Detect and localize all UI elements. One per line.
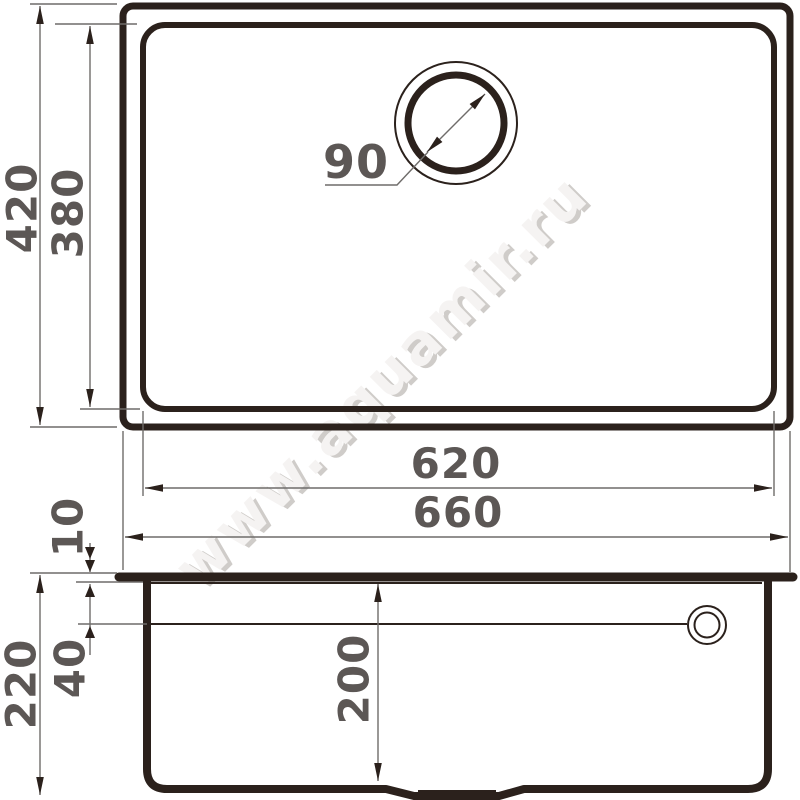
drawing-canvas: www.aquamir.ru www.aquamir.ru 90 420 380… <box>0 0 800 800</box>
total-height-label: 220 <box>0 639 46 730</box>
outer-depth-label: 420 <box>0 163 47 254</box>
chevron-arrow-up-2 <box>85 626 95 638</box>
overflow-offset-label: 40 <box>46 638 95 698</box>
drain-diameter-arrow <box>427 94 485 152</box>
chevron-arrow-up-1 <box>85 585 95 597</box>
top-view-dimensions: 420 380 620 660 <box>0 4 790 572</box>
outer-width-label: 660 <box>413 488 504 537</box>
rim-thickness-label: 10 <box>44 497 93 557</box>
chevron-arrow-down-2 <box>85 560 95 572</box>
drain-diameter-label: 90 <box>323 135 389 189</box>
bowl-depth-label: 200 <box>330 634 379 725</box>
side-view-bowl-body <box>147 580 768 796</box>
watermark-text: www.aquamir.ru <box>162 162 601 601</box>
top-view: 90 <box>123 6 790 427</box>
sink-dimension-drawing: www.aquamir.ru www.aquamir.ru 90 420 380… <box>0 0 800 800</box>
overflow-hole-inner-circle <box>695 613 720 638</box>
top-view-outer-outline <box>123 6 790 427</box>
inner-width-label: 620 <box>411 439 502 488</box>
inner-depth-label: 380 <box>44 168 93 259</box>
side-view <box>119 577 793 796</box>
